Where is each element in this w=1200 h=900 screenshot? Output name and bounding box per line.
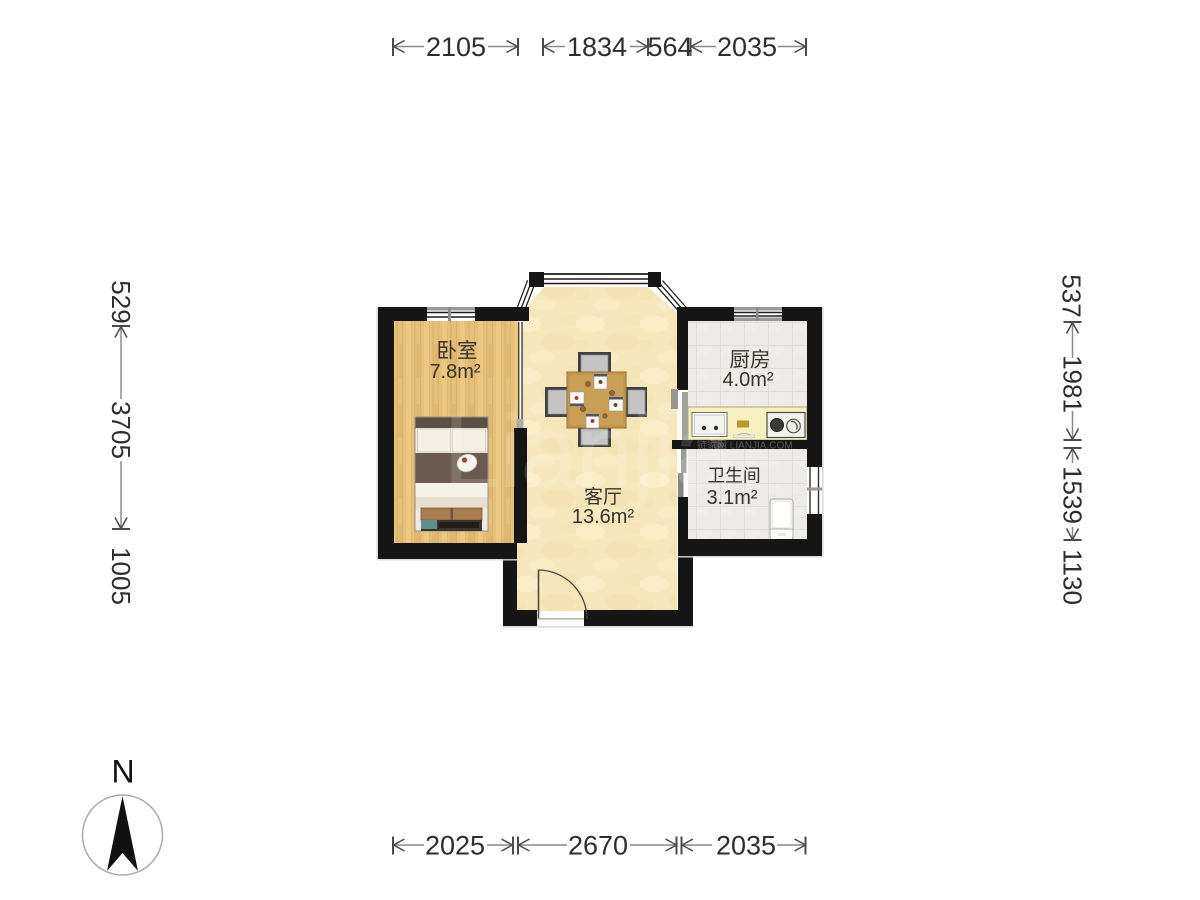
svg-text:564: 564 — [647, 32, 692, 62]
svg-text:1981: 1981 — [1058, 355, 1088, 413]
svg-text:13.6m²: 13.6m² — [572, 506, 635, 528]
svg-text:1005: 1005 — [106, 547, 136, 605]
svg-text:链家网 LIANJIA.COM: 链家网 LIANJIA.COM — [697, 439, 793, 452]
svg-text:1539: 1539 — [1058, 466, 1088, 524]
svg-text:卫生间: 卫生间 — [707, 466, 760, 486]
svg-text:3.1m²: 3.1m² — [706, 487, 757, 509]
svg-text:2035: 2035 — [717, 32, 777, 62]
svg-text:1130: 1130 — [1058, 549, 1088, 605]
svg-text:4.0m²: 4.0m² — [722, 369, 773, 391]
svg-text:3705: 3705 — [106, 401, 136, 459]
svg-text:1834: 1834 — [567, 32, 627, 62]
svg-text:卧室: 卧室 — [437, 340, 478, 363]
svg-text:2025: 2025 — [425, 831, 485, 861]
svg-text:2105: 2105 — [426, 32, 486, 62]
svg-text:2670: 2670 — [568, 831, 628, 861]
svg-text:N: N — [111, 754, 134, 790]
svg-text:529: 529 — [106, 280, 136, 323]
svg-text:7.8m²: 7.8m² — [429, 361, 480, 383]
svg-text:537: 537 — [1057, 274, 1087, 317]
svg-text:2035: 2035 — [716, 831, 776, 861]
svg-text:客厅: 客厅 — [584, 486, 622, 508]
